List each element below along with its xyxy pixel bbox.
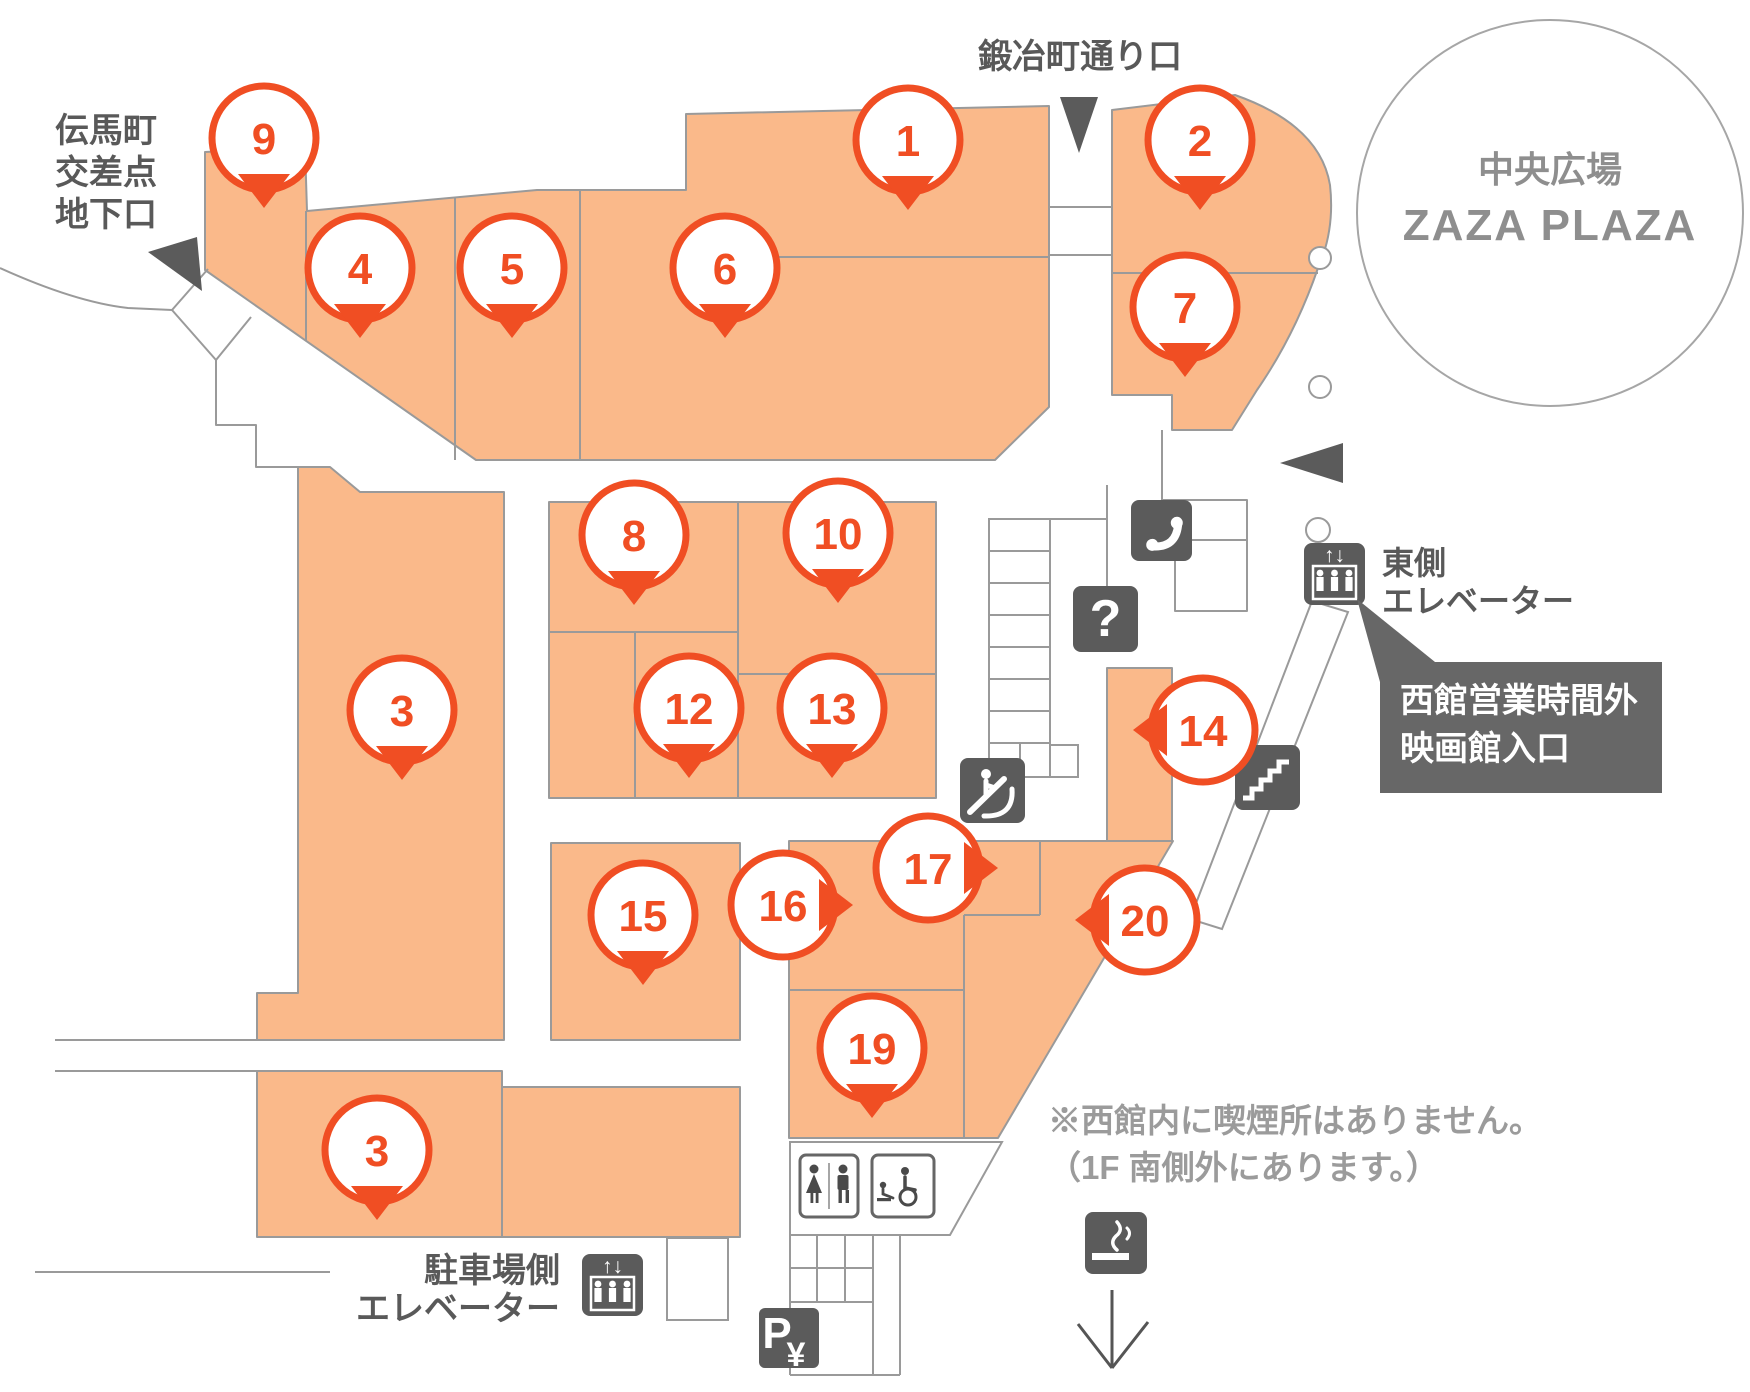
toilet-icon xyxy=(800,1155,858,1217)
smoking-icon xyxy=(1085,1212,1147,1274)
marker-number: 7 xyxy=(1173,284,1197,333)
svg-text:西館営業時間外: 西館営業時間外 xyxy=(1400,682,1638,720)
floor-map-svg: ↑↓ xyxy=(0,0,1750,1392)
svg-text:映画館入口: 映画館入口 xyxy=(1400,730,1570,768)
phone-icon xyxy=(1131,500,1192,561)
marker-number: 6 xyxy=(713,245,737,294)
north-entrance-label: 鍛冶町通り口 xyxy=(978,38,1182,76)
marker-number: 16 xyxy=(759,882,808,931)
svg-text:伝馬町: 伝馬町 xyxy=(55,112,157,150)
east-elevator-label: 東側 エレベーター xyxy=(1382,545,1574,619)
escalator-icon xyxy=(960,758,1025,823)
svg-text:交差点: 交差点 xyxy=(55,153,157,192)
accessible-baby-icon xyxy=(872,1155,934,1217)
marker-number: 9 xyxy=(252,115,276,164)
svg-text:※西館内に喫煙所はありません。: ※西館内に喫煙所はありません。 xyxy=(1048,1102,1542,1139)
marker-number: 3 xyxy=(390,687,414,736)
svg-text:（1F 南側外にあります。）: （1F 南側外にあります。） xyxy=(1048,1149,1439,1186)
marker-number: 20 xyxy=(1121,897,1170,946)
svg-text:中央広場: 中央広場 xyxy=(1478,149,1622,190)
east-entrance-arrow-icon xyxy=(1280,443,1343,483)
svg-text:地下口: 地下口 xyxy=(55,196,157,234)
marker-number: 14 xyxy=(1179,707,1228,756)
svg-text:ZAZA PLAZA: ZAZA PLAZA xyxy=(1403,201,1698,250)
marker-number: 10 xyxy=(814,510,863,559)
parking-elevator-label: 駐車場側 エレベーター xyxy=(356,1252,560,1328)
marker-number: 13 xyxy=(808,685,857,734)
smoking-area-arrow-icon xyxy=(1078,1290,1148,1368)
parking-elevator-icon xyxy=(582,1254,643,1316)
marker-number: 3 xyxy=(365,1127,389,1176)
information-icon: ? xyxy=(1073,586,1138,652)
svg-text:?: ? xyxy=(1090,590,1122,648)
marker-number: 19 xyxy=(848,1025,897,1074)
svg-text:エレベーター: エレベーター xyxy=(1382,583,1574,619)
west-entrance-arrow-icon xyxy=(148,237,202,291)
marker-number: 4 xyxy=(348,245,373,294)
svg-text:東側: 東側 xyxy=(1382,545,1446,581)
marker-number: 17 xyxy=(904,845,953,894)
marker-number: 12 xyxy=(665,685,714,734)
marker-number: 8 xyxy=(622,512,646,561)
marker-number: 1 xyxy=(896,117,920,166)
cinema-entrance-callout: 西館営業時間外 映画館入口 xyxy=(1380,662,1662,793)
svg-text:エレベーター: エレベーター xyxy=(356,1290,560,1328)
marker-number: 15 xyxy=(619,892,668,941)
marker-number: 5 xyxy=(500,245,524,294)
svg-text:駐車場側: 駐車場側 xyxy=(424,1252,560,1290)
north-entrance-arrow-icon xyxy=(1060,97,1098,153)
marker-number: 2 xyxy=(1188,117,1212,166)
smoking-note: ※西館内に喫煙所はありません。 （1F 南側外にあります。） xyxy=(1048,1102,1542,1186)
parking-payment-icon: P ¥ xyxy=(759,1308,819,1374)
floor-map: ↑↓ xyxy=(0,0,1750,1392)
west-entrance-label: 伝馬町 交差点 地下口 xyxy=(55,112,157,234)
svg-text:¥: ¥ xyxy=(787,1336,806,1374)
east-elevator-icon xyxy=(1304,543,1365,605)
